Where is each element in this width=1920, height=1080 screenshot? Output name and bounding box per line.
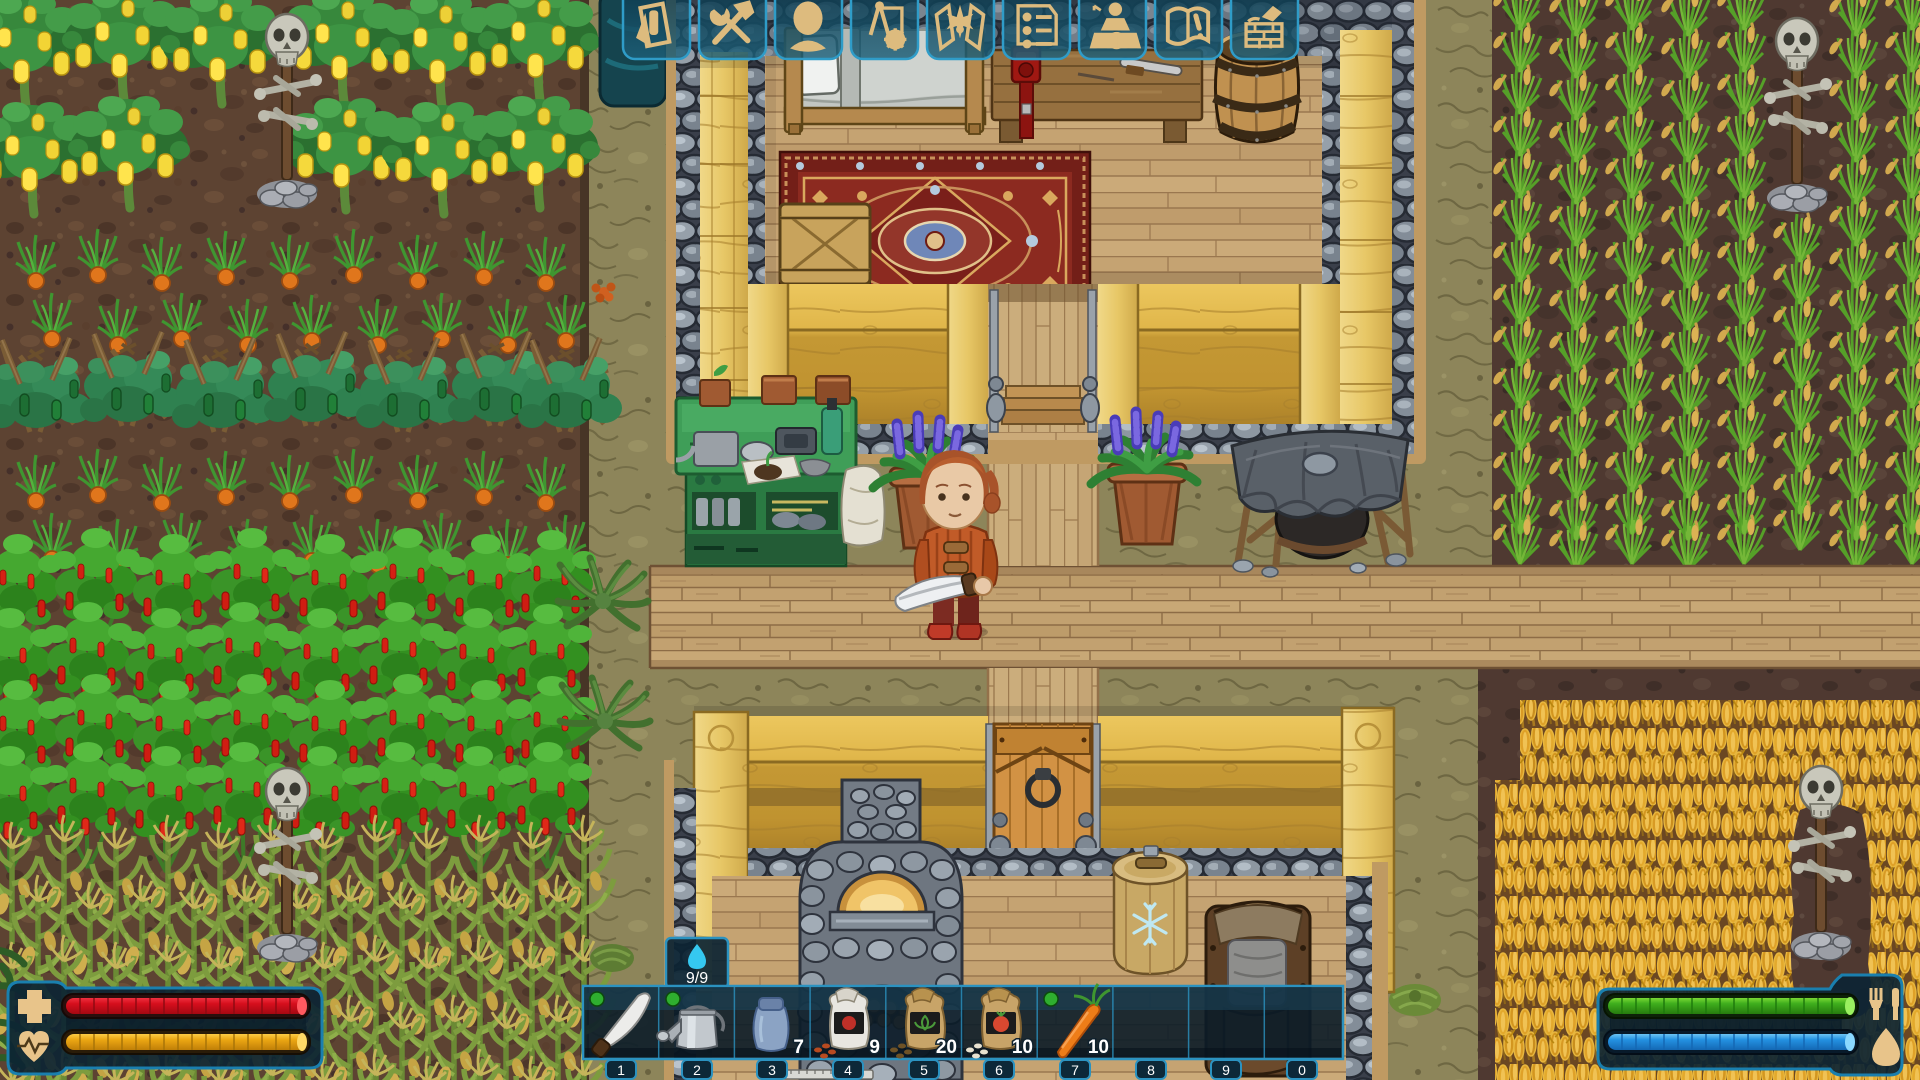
svg-text:7: 7 xyxy=(793,1037,804,1058)
svg-text:5: 5 xyxy=(920,1062,928,1078)
svg-text:20: 20 xyxy=(936,1037,957,1058)
svg-text:0: 0 xyxy=(1298,1062,1306,1078)
svg-text:10: 10 xyxy=(1088,1037,1109,1058)
svg-text:9: 9 xyxy=(869,1037,880,1058)
svg-text:7: 7 xyxy=(1071,1062,1079,1078)
svg-text:2: 2 xyxy=(693,1062,701,1078)
svg-text:3: 3 xyxy=(768,1062,776,1078)
svg-text:4: 4 xyxy=(844,1062,852,1078)
svg-text:1: 1 xyxy=(617,1062,625,1078)
svg-text:9/9: 9/9 xyxy=(686,970,708,987)
svg-text:10: 10 xyxy=(1012,1037,1033,1058)
svg-text:8: 8 xyxy=(1147,1062,1155,1078)
svg-text:9: 9 xyxy=(1222,1062,1230,1078)
svg-text:6: 6 xyxy=(995,1062,1003,1078)
